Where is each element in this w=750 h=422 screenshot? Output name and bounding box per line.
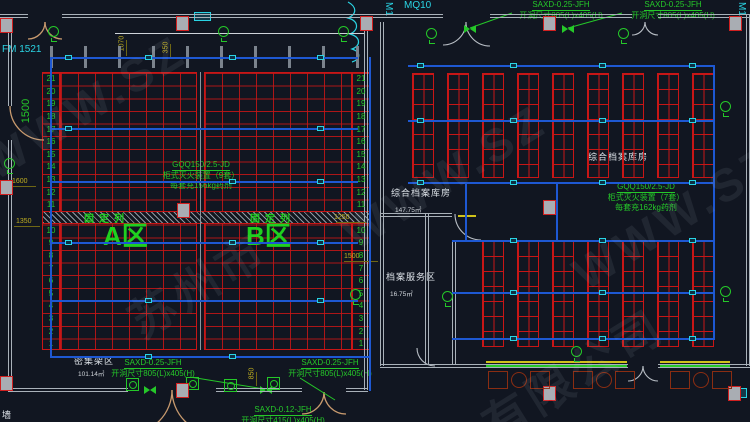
wall-segment: [62, 14, 443, 18]
sprinkler-nozzle-icon: [510, 118, 517, 123]
wall-segment: [452, 240, 456, 364]
wall-segment: [380, 213, 452, 217]
archive-rack: [447, 73, 469, 178]
detector-device-icon: [48, 26, 59, 37]
structural-column: [729, 16, 742, 31]
opening-model: SAXD-0.12-JFH: [254, 405, 311, 416]
extinguisher-note-left: GQQ150/2.5-JD 柜式灭火装置（9套） 每套充156kg药剂: [133, 160, 269, 191]
sprinkler-nozzle-icon: [145, 298, 152, 303]
pipe-horizontal: [452, 338, 715, 340]
line: [256, 372, 257, 386]
sprinkler-nozzle-icon: [317, 55, 324, 60]
pipe-horizontal: [408, 182, 715, 184]
sprinkler-nozzle-icon: [317, 179, 324, 184]
structural-column: [176, 383, 189, 398]
sprinkler-nozzle-icon: [417, 63, 424, 68]
pipe-horizontal: [50, 128, 358, 130]
row-number: 16: [352, 136, 370, 147]
archive-rack: [412, 73, 434, 178]
wall-segment: [8, 388, 128, 392]
fixed-column-label-b: 固定列: [250, 210, 295, 225]
sprinkler-nozzle-icon: [65, 126, 72, 131]
pipe-horizontal: [50, 242, 358, 244]
release-device-icon: [267, 377, 280, 390]
opening-model: SAXD-0.25-JFH: [301, 358, 358, 369]
row-number: 20: [352, 86, 370, 97]
extinguisher-note-right: GQQ150/2.5-JD 柜式灭火装置（7套） 每套充162kg药剂: [578, 182, 714, 213]
sprinkler-nozzle-icon: [599, 336, 606, 341]
structural-column: [543, 16, 556, 31]
archive-rack: [552, 73, 574, 178]
sprinkler-nozzle-icon: [229, 179, 236, 184]
detector-device-icon: [442, 291, 453, 302]
window-tag-mq10: MQ10: [404, 0, 431, 11]
archive-rack: [587, 73, 609, 178]
pipe-horizontal: [50, 57, 358, 59]
extinguisher-type: 柜式灭火装置（7套）: [578, 193, 714, 203]
detector-device-icon: [720, 101, 731, 112]
pipe-horizontal: [408, 65, 715, 67]
row-number: 14: [352, 161, 370, 172]
sprinkler-nozzle-icon: [145, 354, 152, 359]
row-number: 8: [352, 250, 370, 261]
room-area-service: 16.75㎡: [390, 288, 413, 298]
pipe-horizontal: [408, 120, 715, 122]
sprinkler-nozzle-icon: [65, 55, 72, 60]
detector-device-icon: [338, 26, 349, 37]
pipe-vertical: [369, 57, 371, 391]
pipe-horizontal: [50, 356, 370, 358]
opening-note-bottom-3: SAXD-0.12-JFH 开洞尺寸415(L)x405(H): [222, 405, 344, 422]
pipe-horizontal: [452, 292, 715, 294]
dimension-1500-vertical: 1500: [20, 99, 32, 123]
archive-rack: [692, 73, 714, 178]
dimension-850: 850: [248, 368, 255, 380]
sprinkler-nozzle-icon: [510, 336, 517, 341]
row-number: 1: [352, 338, 370, 349]
detector-device-icon: [720, 286, 731, 297]
dimension-1600: 1600: [12, 178, 28, 185]
structural-column: [0, 180, 13, 195]
opening-model: SAXD-0.25-JFH: [532, 0, 589, 11]
dimension-350: 350: [162, 42, 169, 54]
wall-segment: [490, 14, 632, 18]
sprinkler-nozzle-icon: [689, 290, 696, 295]
archive-rack: [482, 73, 504, 178]
sprinkler-nozzle-icon: [599, 118, 606, 123]
room-name-archive-mid: 综合档案库房: [391, 186, 451, 199]
sprinkler-nozzle-icon: [229, 55, 236, 60]
opening-note-bottom-1: SAXD-0.25-JFH 开洞尺寸805(L)x405(H): [95, 358, 211, 379]
structural-column: [177, 203, 190, 218]
extinguisher-model: GQQ150/2.5-JD: [172, 160, 230, 171]
row-number: 19: [352, 98, 370, 109]
structural-column: [360, 16, 373, 31]
detector-device-icon: [350, 289, 361, 300]
sprinkler-nozzle-icon: [510, 238, 517, 243]
sprinkler-nozzle-icon: [510, 290, 517, 295]
sprinkler-nozzle-icon: [317, 240, 324, 245]
sprinkler-nozzle-icon: [65, 240, 72, 245]
sprinkler-nozzle-icon: [599, 238, 606, 243]
wall-segment: [746, 14, 750, 366]
opening-model: SAXD-0.25-JFH: [124, 358, 181, 369]
pipe-vertical: [713, 65, 715, 340]
row-number: 15: [352, 149, 370, 160]
pipe-vertical: [556, 182, 558, 242]
line: [115, 33, 364, 34]
line: [458, 215, 476, 217]
desk: [573, 371, 593, 389]
sprinkler-nozzle-icon: [145, 55, 152, 60]
row-number: 2: [352, 326, 370, 337]
line: [486, 365, 627, 367]
sprinkler-nozzle-icon: [689, 180, 696, 185]
row-number: 10: [352, 225, 370, 236]
dimension-1250: 1250: [334, 214, 350, 221]
sprinkler-nozzle-icon: [510, 63, 517, 68]
release-device-icon: [224, 379, 237, 392]
archive-rack: [657, 73, 679, 178]
sprinkler-nozzle-icon: [689, 238, 696, 243]
desk: [530, 371, 550, 389]
row-number: 11: [352, 199, 370, 210]
archive-rack: [517, 73, 539, 178]
desk: [488, 371, 508, 389]
pipe-horizontal: [50, 300, 358, 302]
edge-wall-label: 墙: [2, 408, 12, 421]
row-number: 6: [352, 275, 370, 286]
opening-model: SAXD-0.25-JFH: [644, 0, 701, 11]
desk: [615, 371, 635, 389]
pipe-horizontal: [452, 240, 715, 242]
line: [336, 222, 366, 223]
line: [126, 40, 127, 56]
extinguisher-charge: 每套充162kg药剂: [578, 203, 714, 213]
sprinkler-nozzle-icon: [689, 118, 696, 123]
sprinkler-nozzle-icon: [317, 126, 324, 131]
row-number: 18: [352, 111, 370, 122]
pipe-vertical: [465, 182, 467, 242]
row-number: 7: [352, 263, 370, 274]
sprinkler-nozzle-icon: [417, 118, 424, 123]
sprinkler-nozzle-icon: [689, 63, 696, 68]
release-device-icon: [126, 378, 139, 391]
structural-column: [0, 376, 13, 391]
sprinkler-nozzle-icon: [510, 180, 517, 185]
extinguisher-type: 柜式灭火装置（9套）: [133, 171, 269, 181]
line: [14, 226, 40, 227]
row-number: 13: [352, 174, 370, 185]
detector-device-icon: [571, 346, 582, 357]
row-number: 21: [352, 73, 370, 84]
dimension-1350: 1350: [16, 218, 32, 225]
structural-column: [0, 18, 13, 33]
wall-segment: [8, 140, 12, 388]
chair: [693, 372, 709, 388]
wall-segment: [8, 22, 12, 106]
line: [200, 72, 201, 350]
sprinkler-nozzle-icon: [599, 63, 606, 68]
sprinkler-nozzle-icon: [417, 180, 424, 185]
chair: [511, 372, 527, 388]
line: [10, 186, 36, 187]
sprinkler-nozzle-icon: [229, 240, 236, 245]
pipe-vertical: [50, 57, 52, 357]
sprinkler-nozzle-icon: [599, 180, 606, 185]
sprinkler-nozzle-icon: [317, 298, 324, 303]
sprinkler-nozzle-icon: [599, 290, 606, 295]
wall-segment: [380, 22, 384, 366]
desk: [712, 371, 732, 389]
archive-rack: [622, 73, 644, 178]
line: [486, 361, 627, 363]
detector-device-icon: [4, 158, 15, 169]
line: [660, 361, 730, 363]
wall-segment: [425, 213, 429, 364]
fixed-column-label-a: 固定列: [84, 210, 129, 225]
drawing-canvas: FM 1521 M1 MQ10 M1 SAXD-0.25-JFH 开洞尺寸805…: [0, 0, 750, 422]
structural-column: [543, 200, 556, 215]
detector-device-icon: [618, 28, 629, 39]
chair: [596, 372, 612, 388]
sprinkler-nozzle-icon: [689, 336, 696, 341]
line: [170, 44, 171, 57]
row-number: 12: [352, 187, 370, 198]
detector-device-icon: [426, 28, 437, 39]
opening-size: 开洞尺寸415(L)x405(H): [222, 416, 344, 422]
pipe-horizontal: [50, 181, 358, 183]
desk: [670, 371, 690, 389]
line: [660, 365, 730, 367]
detector-device-icon: [218, 26, 229, 37]
sprinkler-nozzle-icon: [229, 354, 236, 359]
structural-column: [176, 16, 189, 31]
row-number: 3: [352, 313, 370, 324]
